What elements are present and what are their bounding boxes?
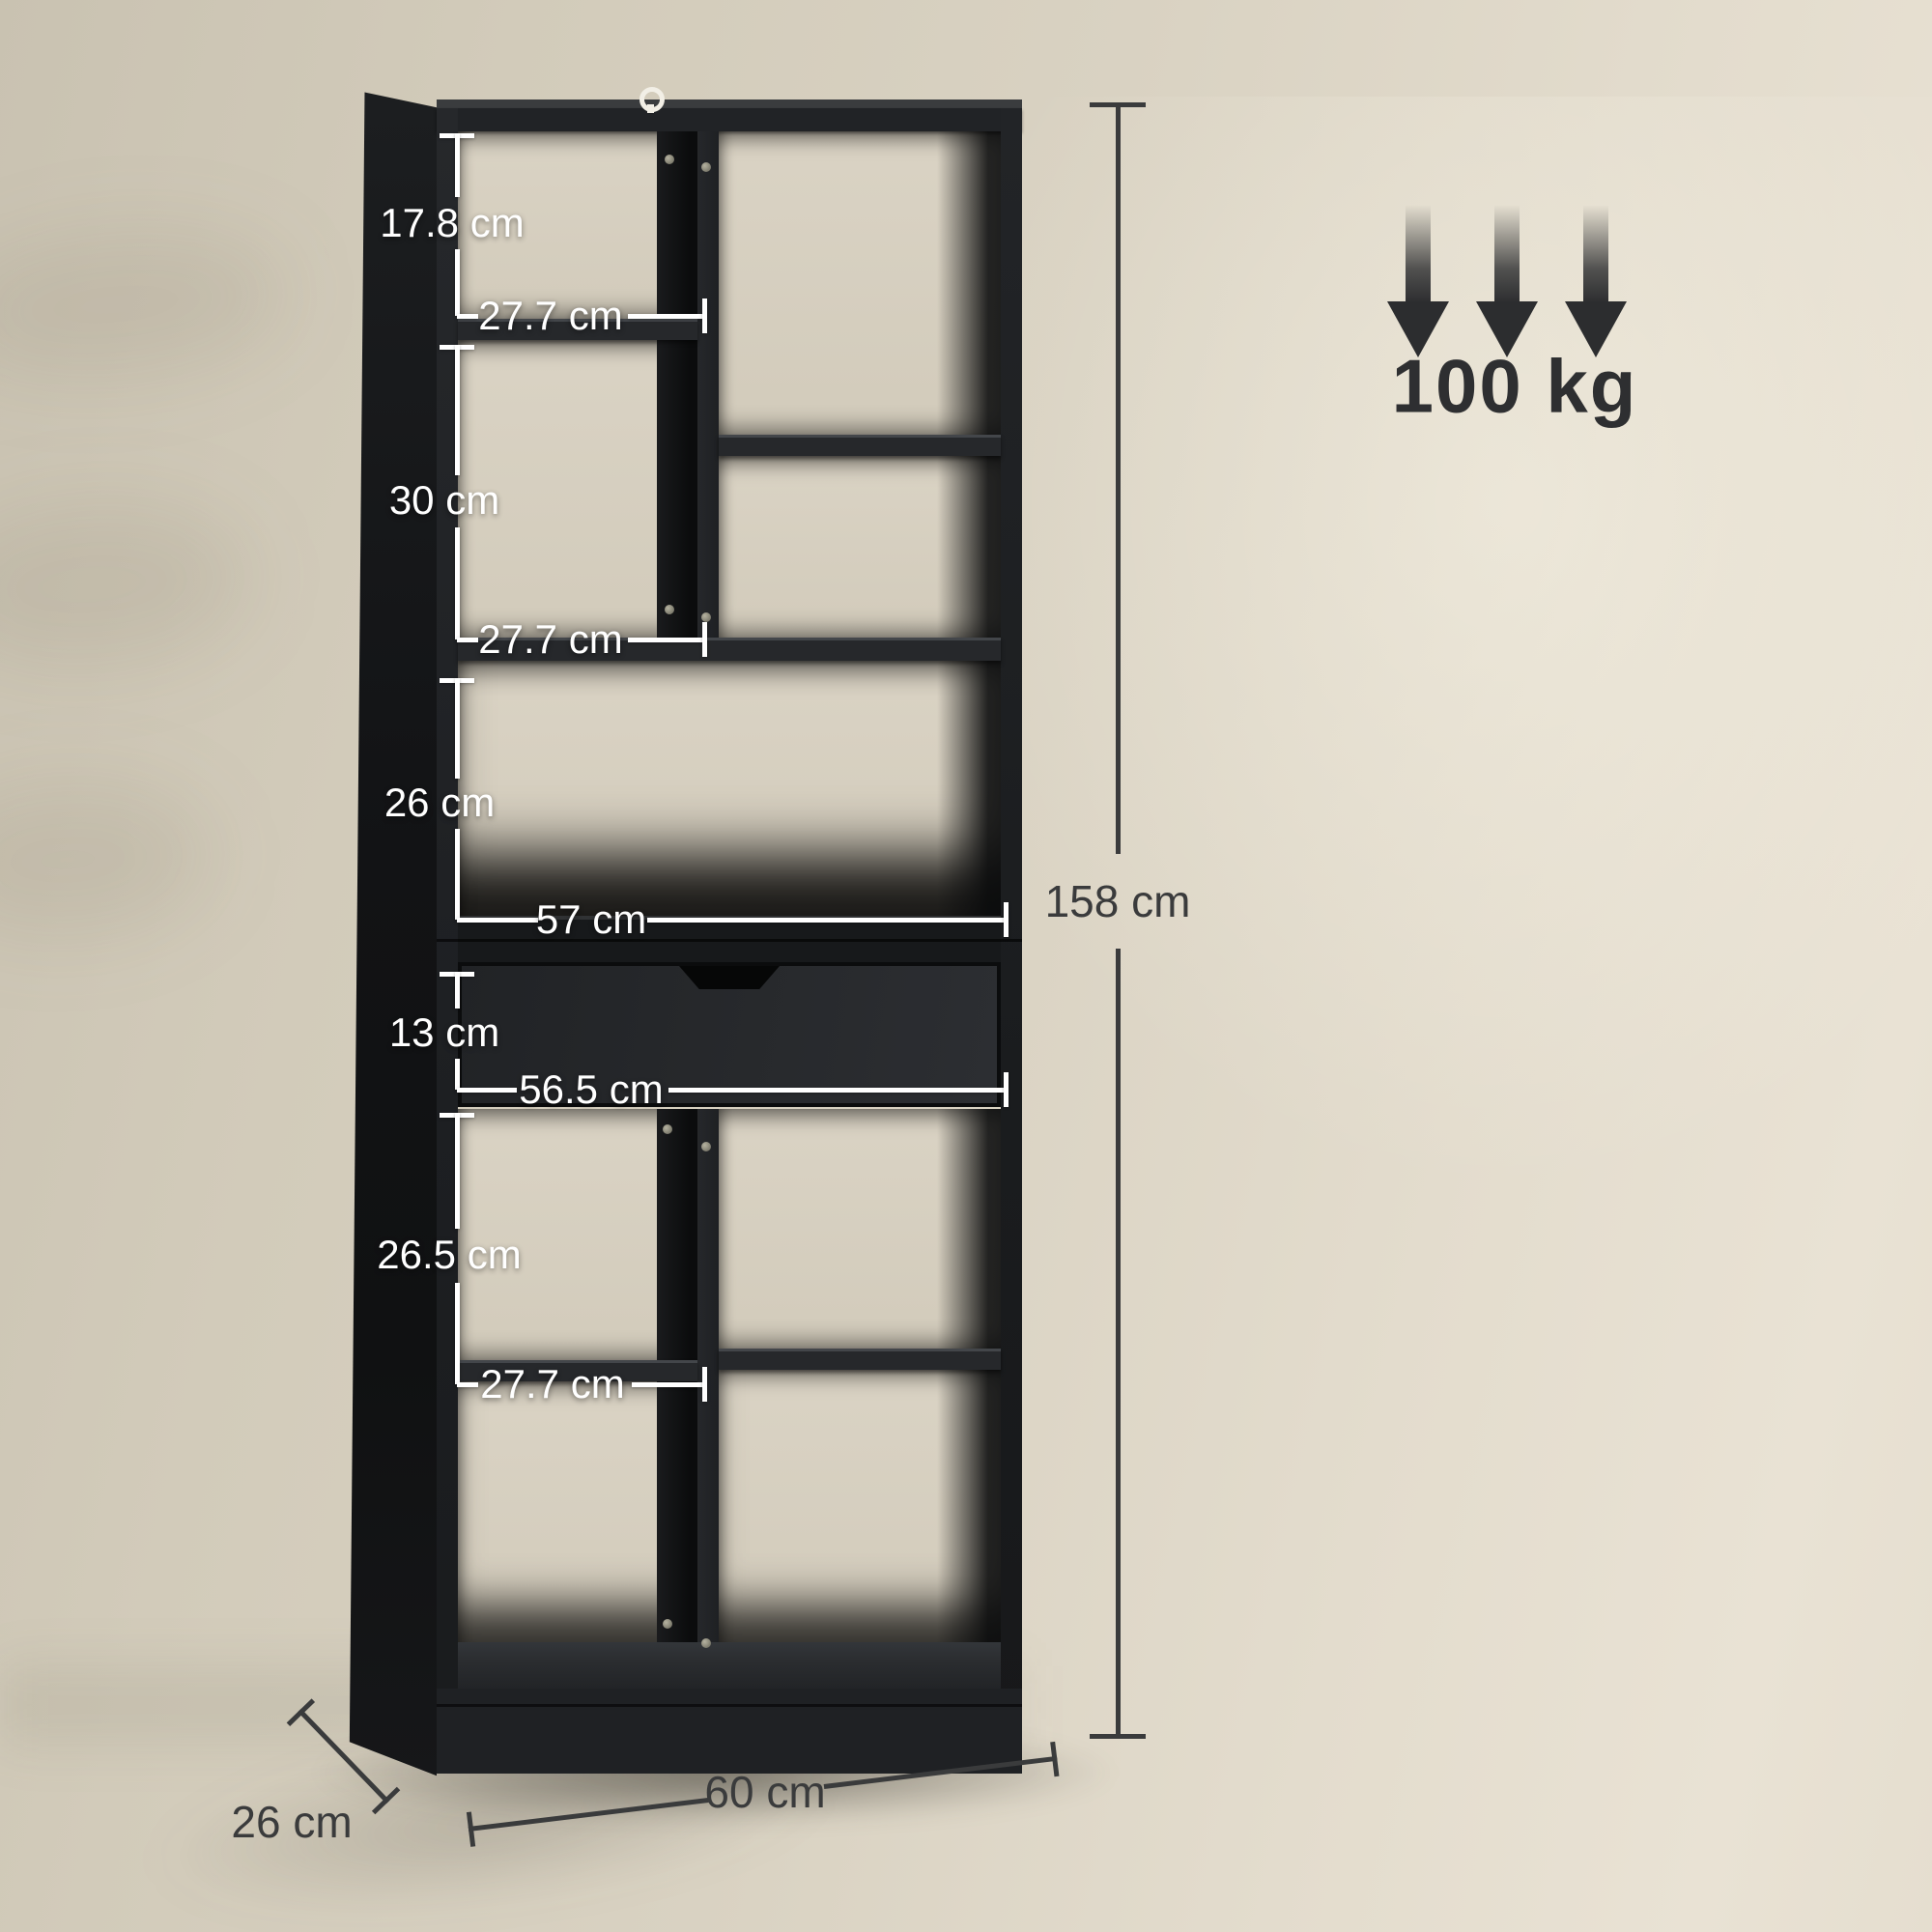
open-shelf-compartment <box>458 661 1001 918</box>
arrow-shaft <box>1494 205 1520 303</box>
arrow-shaft <box>1406 205 1431 303</box>
upper-divider <box>697 131 719 638</box>
screw-icon <box>701 612 711 622</box>
dim-label-lower-cubby-height: 26.5 cm <box>377 1235 521 1275</box>
dim-label-middle-cubby-height: 30 cm <box>389 480 499 521</box>
cubby-lower-right <box>719 1109 1001 1349</box>
shelf-upper-right <box>719 435 1001 456</box>
dim-label-depth: 26 cm <box>231 1800 352 1844</box>
arrow-shaft <box>1583 205 1608 303</box>
cubby-top-right <box>719 131 1001 435</box>
down-arrow-icon <box>1476 205 1538 357</box>
dim-line <box>628 314 705 319</box>
screw-icon <box>665 155 674 164</box>
shelf-lower-right <box>719 1349 1001 1370</box>
dim-line <box>455 829 460 920</box>
dim-label-upper-cubby-height: 17.8 cm <box>380 203 524 243</box>
dim-label-lower-cubby-width: 27.7 cm <box>480 1364 624 1405</box>
dim-cap <box>702 1367 707 1402</box>
dim-line <box>457 1088 517 1093</box>
dim-label-middle-cubby-width: 27.7 cm <box>478 619 622 660</box>
dim-cap <box>1004 1072 1009 1107</box>
dim-line <box>647 918 1007 923</box>
dim-cap <box>702 622 707 657</box>
bottom-panel <box>458 1642 1001 1689</box>
screw-icon <box>701 162 711 172</box>
screw-icon <box>701 1142 711 1151</box>
cubby-middle-right <box>719 456 1001 638</box>
dim-label-upper-cubby-width: 27.7 cm <box>478 296 622 336</box>
cubby-bottom-right <box>719 1370 1001 1642</box>
dim-line <box>455 1283 460 1384</box>
dim-cap <box>1004 902 1009 937</box>
screw-icon <box>701 1638 711 1648</box>
dim-line <box>455 972 460 1009</box>
dim-line <box>628 638 705 642</box>
lower-divider <box>697 1109 719 1652</box>
dim-label-open-shelf-height: 26 cm <box>384 782 495 823</box>
dim-line <box>457 314 478 319</box>
capacity-label: 100 kg <box>1392 343 1638 431</box>
dim-label-width: 60 cm <box>704 1770 825 1814</box>
dim-line <box>457 918 538 923</box>
top-panel <box>437 108 1022 131</box>
dim-line <box>455 678 460 779</box>
upper-divider-side <box>657 131 697 638</box>
dim-label-drawer-width: 56.5 cm <box>519 1069 663 1110</box>
dim-line <box>457 638 478 642</box>
dim-line <box>455 1113 460 1229</box>
dim-cap <box>702 298 707 333</box>
dim-line <box>1116 102 1121 854</box>
product-dimension-diagram: 17.8 cm 27.7 cm 30 cm 27.7 cm 26 cm 57 c… <box>0 0 1932 1932</box>
plinth <box>437 1689 1022 1774</box>
dim-line <box>1116 949 1121 1737</box>
down-arrow-icon <box>1565 205 1627 357</box>
drawer-handle-cutout <box>679 966 780 989</box>
dim-cap <box>1090 1734 1146 1739</box>
dim-line <box>455 345 460 475</box>
dim-label-open-shelf-width: 57 cm <box>536 899 646 940</box>
dim-line <box>455 133 460 197</box>
down-arrow-icon <box>1387 205 1449 357</box>
dim-line <box>455 249 460 316</box>
dim-line <box>455 527 460 639</box>
dim-line <box>455 1059 460 1090</box>
dim-line <box>668 1088 1007 1093</box>
screw-icon <box>663 1124 672 1134</box>
dim-line <box>632 1382 705 1387</box>
dim-line <box>457 1382 478 1387</box>
screw-icon <box>665 605 674 614</box>
dim-label-total-height: 158 cm <box>1045 879 1191 923</box>
dim-label-drawer-height: 13 cm <box>389 1012 499 1053</box>
keyhole-hanger-icon <box>639 87 665 112</box>
screw-icon <box>663 1619 672 1629</box>
unit-seam <box>437 939 1022 942</box>
